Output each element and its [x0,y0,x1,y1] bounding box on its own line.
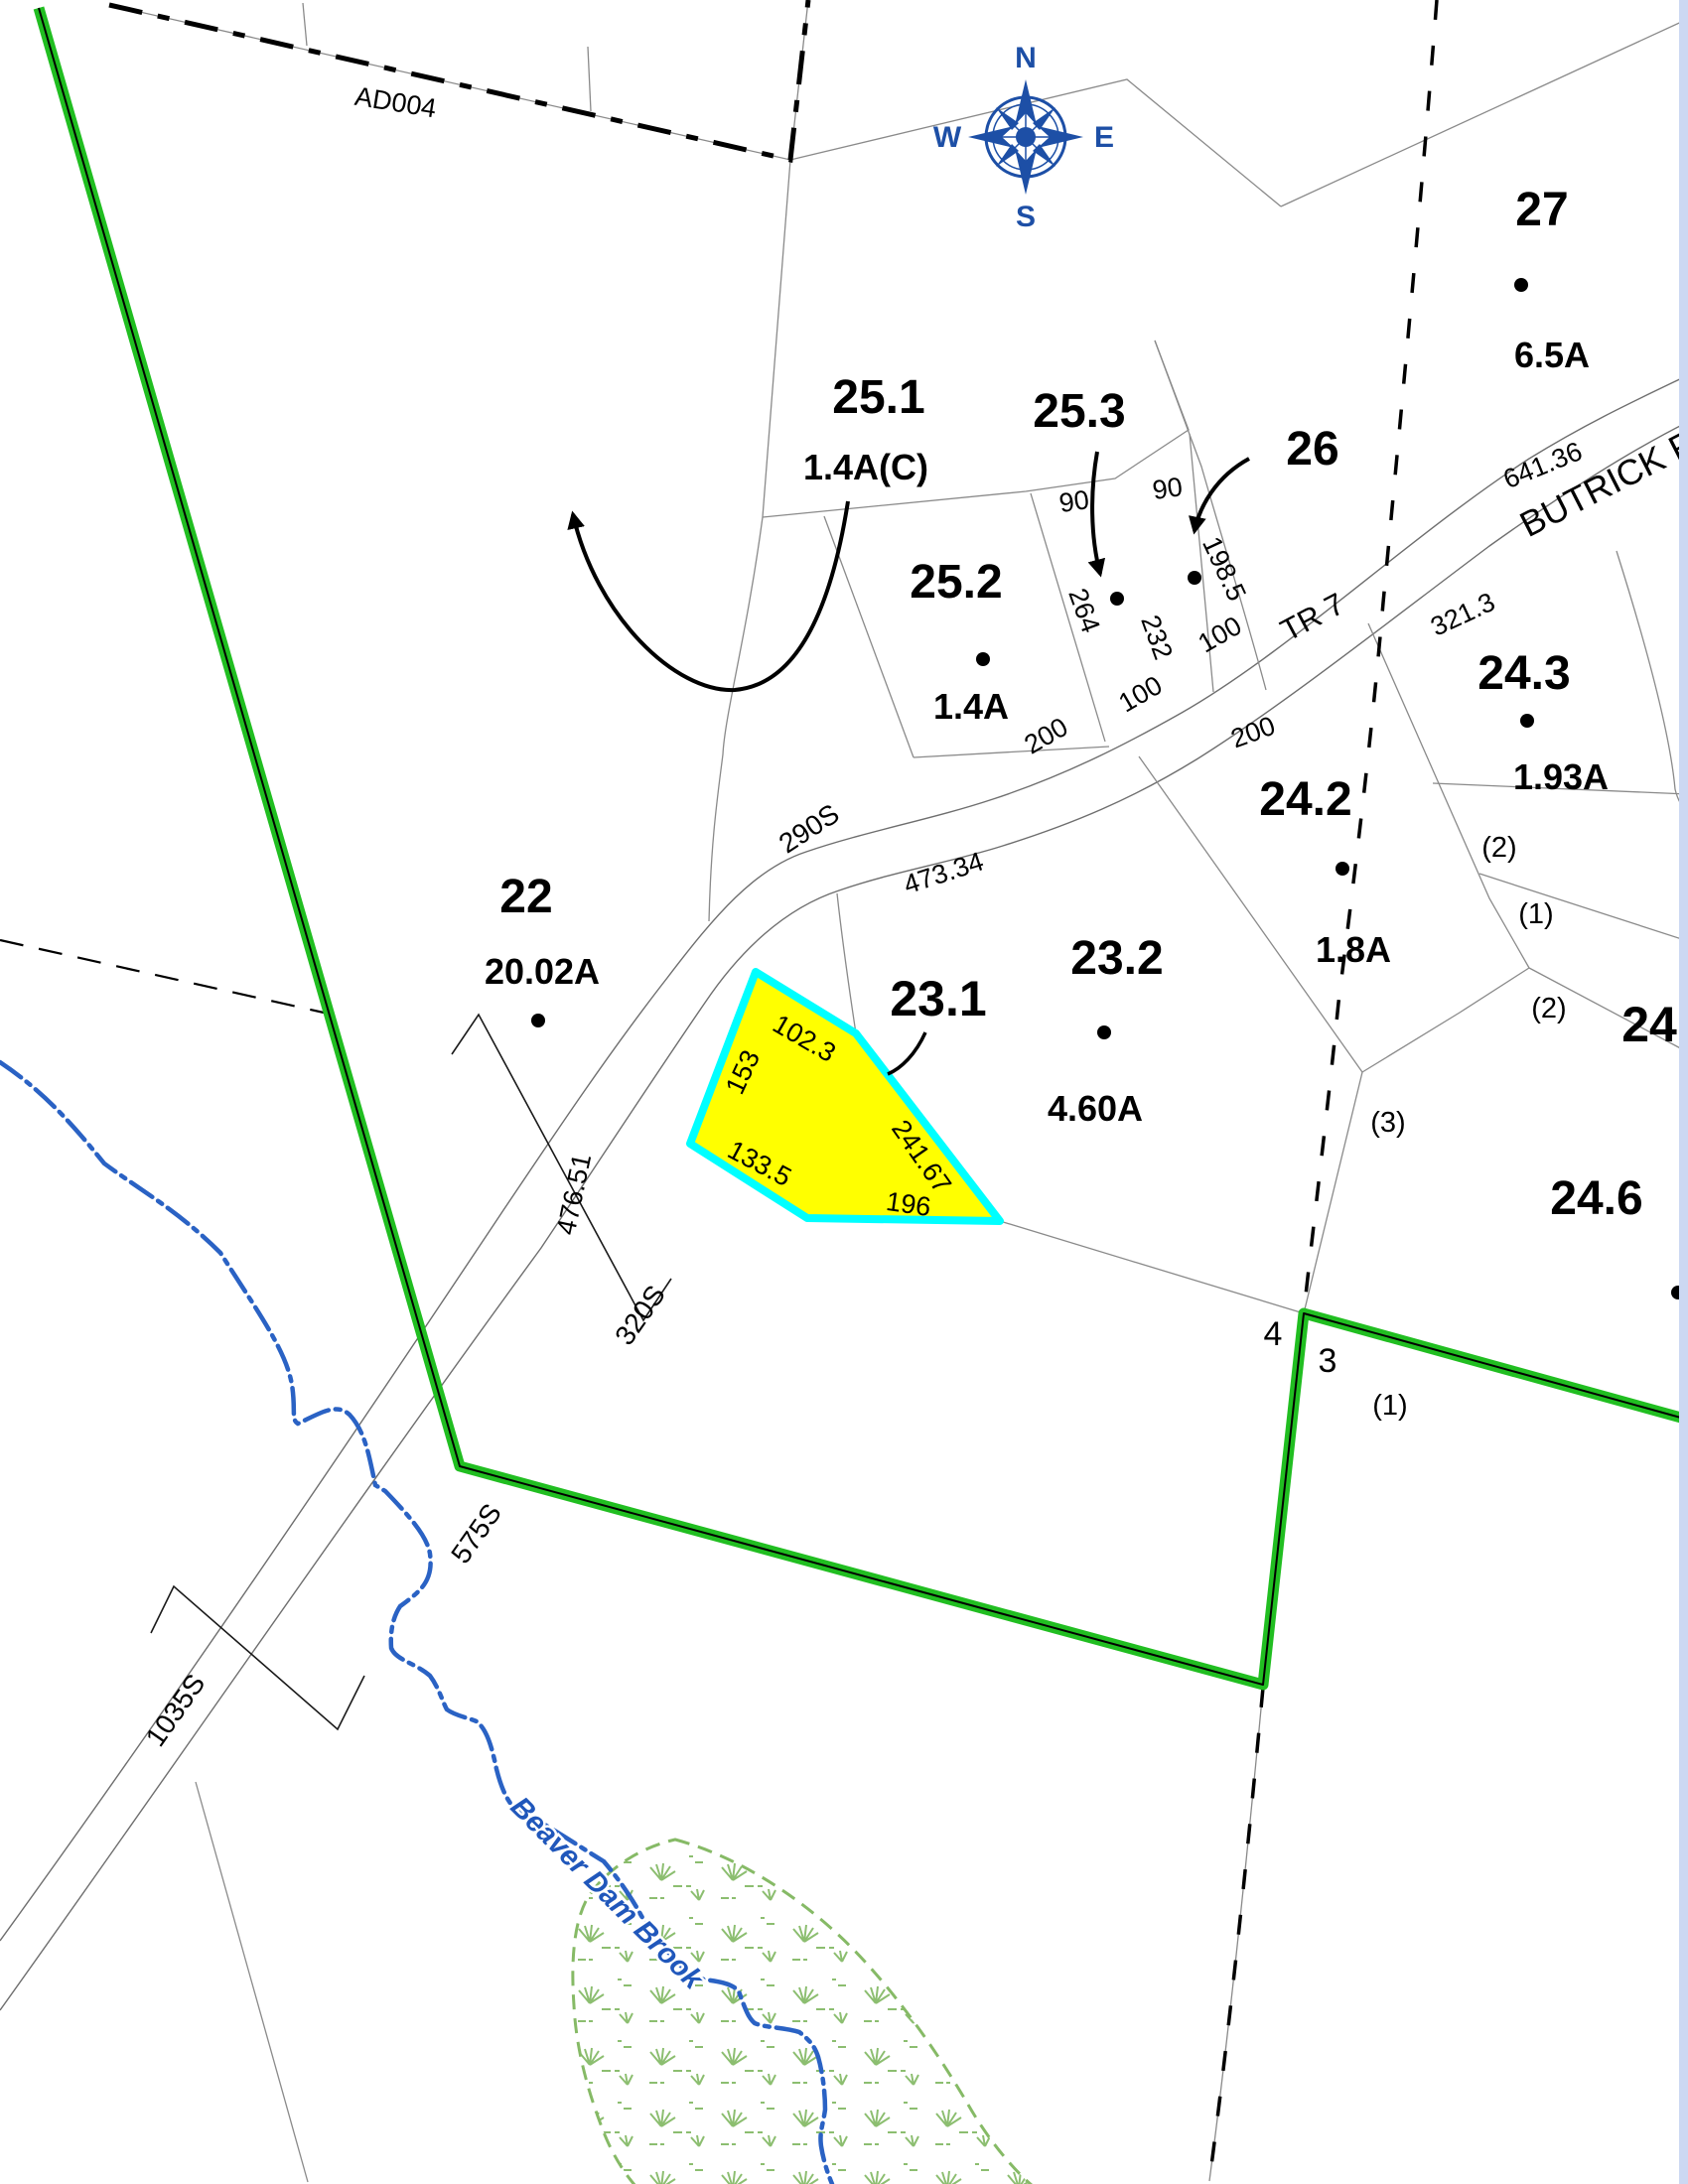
compass-rose: N S E W [933,42,1114,233]
compass-south-label: S [1016,201,1036,233]
parcel-label-25-1: 25.1 [832,371,924,424]
sub-label-1a: (1) [1518,898,1553,930]
parcel-label-25-3: 25.3 [1033,385,1125,438]
parcel-map: N S E W AD004 27 6.5A 25.1 1.4A(C) 25.3 … [0,0,1688,2184]
dim-196: 196 [885,1186,933,1222]
road-label-butrick: BUTRICK R [1513,421,1688,545]
dot-lot-198 [1188,571,1201,585]
area-label-22: 20.02A [485,951,600,992]
wetland-polygon [573,1840,1033,2184]
parcel-label-24-2: 24.2 [1259,773,1351,826]
boundary-bottom-left [196,1782,308,2182]
sub-label-2a: (2) [1481,832,1516,864]
ad004-label: AD004 [352,81,438,124]
green-boundary [39,8,1688,1685]
station-290s: 290S [774,798,845,860]
arrow-25-3 [1092,452,1100,574]
parcel-label-26: 26 [1286,423,1338,476]
parcel-label-27: 27 [1515,184,1568,236]
boundary-sliver-west [709,517,763,921]
parcel-label-24-3: 24.3 [1477,647,1570,700]
boundary-25-2-south [914,747,1109,757]
dashed-line-west [0,940,324,1013]
area-label-24-3: 1.93A [1513,756,1609,797]
dot-25-2 [976,652,990,666]
parcel-label-23-2: 23.2 [1070,932,1163,985]
boundary-24-6-west [1304,1072,1362,1313]
green-boundary-line [39,8,1688,1685]
dim-232: 232 [1135,612,1179,664]
parcel-label-25-2: 25.2 [910,556,1002,609]
dim-473-34: 473.34 [900,846,987,899]
parcel-label-24-x: 24. [1621,997,1688,1052]
dot-24-2 [1336,862,1349,876]
dot-22 [531,1014,545,1027]
dim-200b: 200 [1227,711,1280,754]
leader-23-1 [888,1032,925,1074]
sub-label-3: (3) [1370,1107,1405,1139]
sub-label-1b: (1) [1372,1390,1407,1422]
dot-23-2 [1097,1025,1111,1039]
arrow-25-1 [573,501,848,690]
parcel-label-24-6: 24.6 [1550,1172,1642,1225]
dashed-line-ad004 [109,0,808,160]
boundary-23-2-west [837,893,856,1033]
parcel-label-22: 22 [499,871,552,923]
boundary-27-east-curve [1617,551,1688,814]
boundary-24-6-north [1362,968,1529,1072]
boundary-23-2-south [1000,1221,1304,1313]
dashed-line-municipal-south [1209,1688,1263,2181]
survey-tick-476 [452,1015,671,1320]
boundary-27-diagonal [1281,19,1688,206]
station-575s: 575S [445,1498,507,1569]
dim-90a: 90 [1057,484,1091,518]
subdivision-labels: (2) (1) (2) (3) (1) 4 3 [1264,832,1567,1422]
area-label-25-2: 1.4A [933,686,1009,727]
survey-marks [151,1015,671,1729]
dim-321-3: 321.3 [1426,587,1499,642]
area-label-24-2: 1.8A [1316,929,1391,970]
parcel-label-23-1: 23.1 [890,971,986,1026]
dim-200a: 200 [1019,712,1072,760]
area-label-25-1: 1.4A(C) [803,447,928,487]
viewport-edge [1679,0,1688,2184]
area-label-23-2: 4.60A [1048,1088,1143,1129]
boundary-lot1-north [1479,874,1688,941]
boundary-tick-1 [303,3,307,46]
station-1035s: 1035S [140,1669,211,1752]
wetland-area [573,1840,1033,2184]
compass-north-label: N [1015,42,1037,74]
sub-label-2b: (2) [1531,993,1566,1024]
dot-24-3 [1520,714,1534,728]
dot-lot-264 [1110,592,1124,606]
area-label-27: 6.5A [1514,335,1590,375]
corner-label-3: 3 [1319,1342,1337,1380]
dim-264: 264 [1062,585,1106,637]
dim-100b: 100 [1193,611,1246,659]
boundary-25-1-west [763,160,790,517]
compass-east-label: E [1094,121,1114,154]
boundary-tick-2 [588,47,591,111]
station-320s: 320S [609,1280,671,1350]
dim-90b: 90 [1151,472,1185,505]
road-label-tr7: TR 7 [1275,586,1350,647]
corner-label-4: 4 [1264,1315,1283,1353]
compass-star [968,79,1083,195]
parcel-labels: AD004 27 6.5A 25.1 1.4A(C) 25.3 26 25.2 … [352,81,1688,1225]
dim-476-51: 476.51 [551,1151,598,1237]
boundary-ad004-underlay [109,0,808,160]
dim-100a: 100 [1113,670,1167,719]
dot-27 [1514,278,1528,292]
compass-west-label: W [933,121,962,154]
